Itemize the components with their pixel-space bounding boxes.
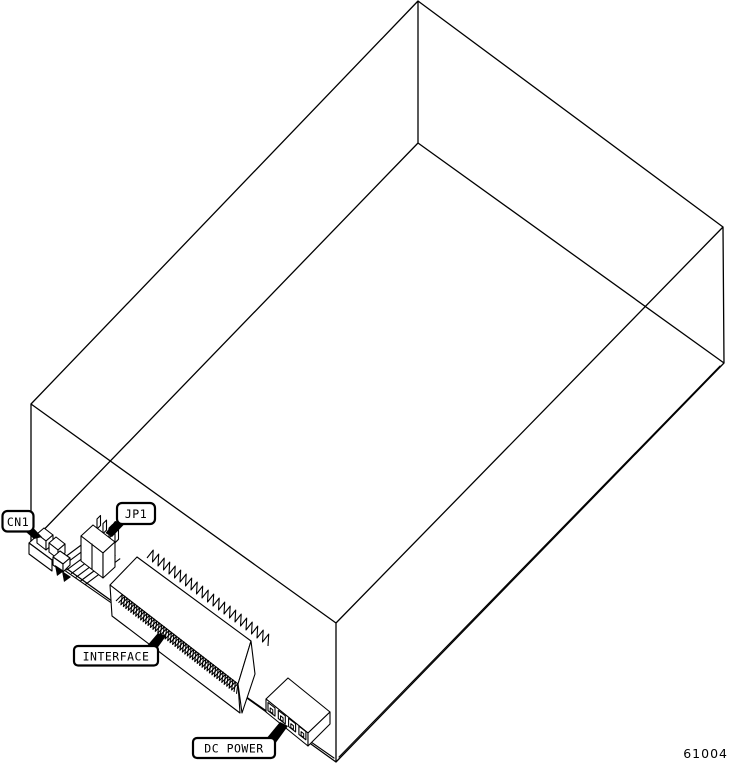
jp1-callout: JP1 <box>106 503 156 537</box>
jp1-callout-label: JP1 <box>125 507 147 521</box>
cn1-callout-label: CN1 <box>7 515 29 529</box>
dc-power-callout: DC POWER <box>193 722 288 758</box>
jp1-pin <box>103 520 107 534</box>
interface-edge-connector <box>110 557 255 713</box>
jp1-pin <box>97 516 101 530</box>
figure-number: 61004 <box>683 746 728 761</box>
interface-callout-label: INTERFACE <box>83 650 150 664</box>
dc-power-callout-label: DC POWER <box>204 742 263 756</box>
diagram-canvas: CN1 JP1 INTERFACE DC POWER 61004 <box>0 0 730 773</box>
drive-isometric-diagram: CN1 JP1 INTERFACE DC POWER 61004 <box>0 0 730 773</box>
cn1-callout: CN1 <box>3 511 43 539</box>
